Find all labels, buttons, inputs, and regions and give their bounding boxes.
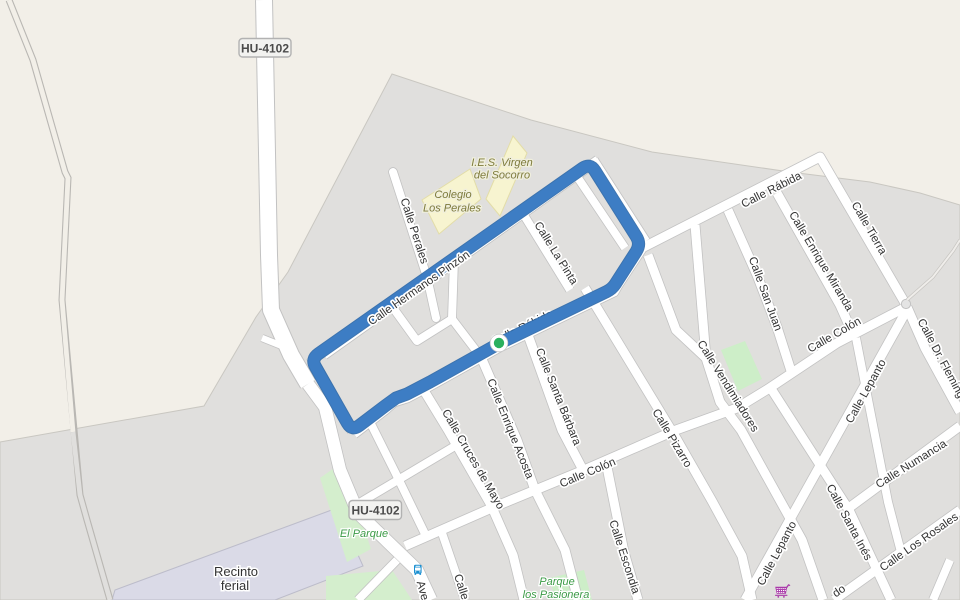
svg-text:Recinto: Recinto [214,564,258,579]
svg-text:Los Perales: Los Perales [423,203,482,215]
svg-text:Parque: Parque [539,576,574,588]
svg-text:El Parque: El Parque [340,528,388,540]
svg-text:HU-4102: HU-4102 [241,42,289,56]
svg-text:I.E.S. Virgen: I.E.S. Virgen [471,157,533,169]
svg-text:los Pasionera: los Pasionera [523,589,590,600]
svg-text:Colegio: Colegio [434,189,471,201]
svg-text:HU-4102: HU-4102 [351,504,399,518]
svg-text:del Socorro: del Socorro [474,170,530,182]
svg-text:ferial: ferial [221,578,249,593]
